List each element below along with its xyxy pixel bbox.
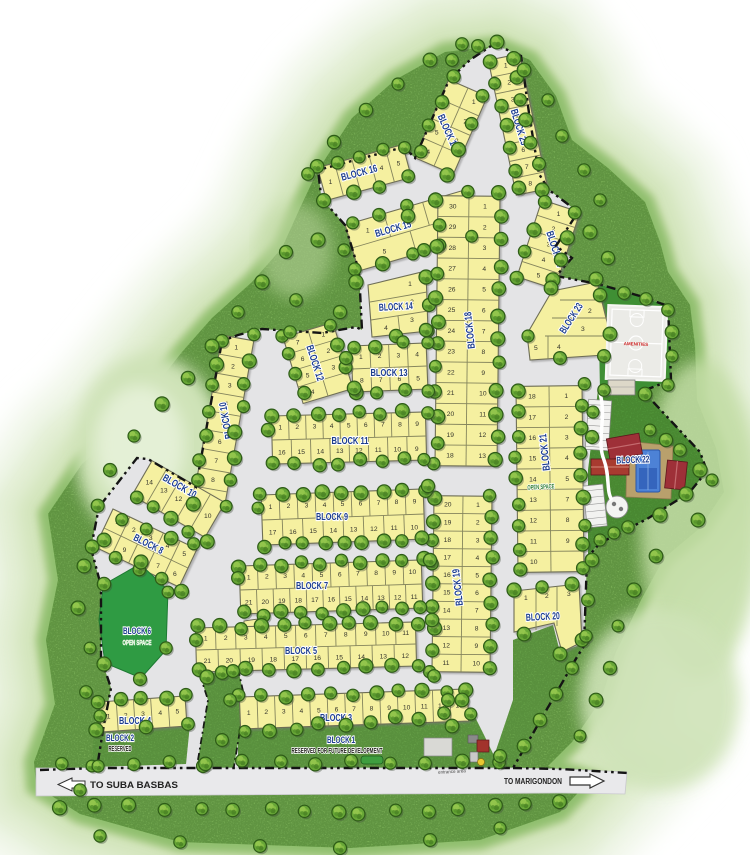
- svg-text:BLOCK 14: BLOCK 14: [379, 301, 414, 314]
- svg-text:14: 14: [146, 479, 154, 486]
- svg-text:1: 1: [204, 635, 208, 642]
- svg-text:9: 9: [415, 421, 419, 428]
- svg-text:OPEN SPACE: OPEN SPACE: [123, 640, 152, 647]
- svg-text:5: 5: [534, 345, 538, 352]
- svg-text:16: 16: [443, 572, 451, 579]
- svg-text:7: 7: [324, 632, 328, 639]
- svg-text:4: 4: [301, 573, 305, 580]
- svg-text:3: 3: [332, 364, 336, 371]
- svg-text:21: 21: [204, 658, 212, 665]
- svg-text:6: 6: [301, 356, 305, 363]
- svg-text:1: 1: [476, 502, 480, 509]
- svg-text:8: 8: [566, 517, 570, 524]
- svg-text:7: 7: [352, 706, 356, 713]
- svg-text:1: 1: [472, 99, 476, 106]
- svg-text:20: 20: [226, 658, 234, 665]
- svg-text:6: 6: [364, 422, 368, 429]
- svg-text:1: 1: [247, 574, 251, 581]
- svg-text:1: 1: [234, 345, 238, 352]
- svg-text:24: 24: [448, 328, 456, 335]
- svg-text:10: 10: [204, 513, 212, 520]
- svg-text:16: 16: [328, 597, 336, 604]
- svg-text:15: 15: [529, 456, 537, 463]
- svg-text:12: 12: [479, 432, 487, 439]
- svg-text:10: 10: [403, 704, 411, 711]
- svg-text:10: 10: [409, 569, 417, 576]
- svg-text:BLOCK 22: BLOCK 22: [616, 454, 650, 466]
- svg-text:15: 15: [309, 528, 317, 535]
- svg-text:4: 4: [542, 257, 546, 264]
- svg-text:16: 16: [278, 449, 286, 456]
- svg-text:12: 12: [370, 526, 378, 533]
- svg-text:7: 7: [377, 500, 381, 507]
- svg-text:BLOCK 1: BLOCK 1: [327, 735, 355, 746]
- svg-text:11: 11: [411, 594, 418, 601]
- svg-text:5: 5: [416, 375, 420, 382]
- svg-text:18: 18: [528, 394, 536, 401]
- svg-text:6: 6: [304, 633, 308, 640]
- svg-text:1: 1: [504, 63, 508, 70]
- svg-text:26: 26: [448, 286, 456, 293]
- svg-text:5: 5: [482, 287, 486, 294]
- svg-text:21: 21: [447, 390, 455, 397]
- svg-text:9: 9: [392, 570, 396, 577]
- svg-text:11: 11: [375, 447, 382, 454]
- svg-text:16: 16: [289, 529, 297, 536]
- svg-text:TO SUBA BASBAS: TO SUBA BASBAS: [90, 780, 178, 791]
- svg-text:11: 11: [421, 704, 428, 711]
- svg-text:11: 11: [443, 660, 450, 667]
- svg-text:3: 3: [410, 317, 414, 324]
- svg-text:8: 8: [211, 477, 215, 484]
- svg-text:1: 1: [557, 211, 561, 218]
- svg-text:4: 4: [300, 708, 304, 715]
- svg-text:2: 2: [565, 414, 569, 421]
- svg-text:6: 6: [338, 571, 342, 578]
- svg-text:23: 23: [447, 349, 455, 356]
- svg-text:11: 11: [479, 411, 486, 418]
- svg-text:6: 6: [173, 571, 177, 578]
- svg-text:20: 20: [261, 599, 269, 606]
- svg-text:13: 13: [443, 625, 451, 632]
- svg-text:BLOCK 9: BLOCK 9: [316, 512, 348, 523]
- svg-text:14: 14: [330, 528, 338, 535]
- svg-text:BLOCK 7: BLOCK 7: [296, 581, 328, 592]
- svg-text:7: 7: [156, 563, 160, 570]
- svg-text:5: 5: [176, 709, 180, 716]
- svg-text:15: 15: [443, 590, 451, 597]
- svg-text:7: 7: [482, 328, 486, 335]
- svg-text:10: 10: [479, 391, 487, 398]
- svg-text:12: 12: [394, 594, 402, 601]
- svg-text:OPEN SPACE: OPEN SPACE: [527, 483, 555, 491]
- svg-text:1: 1: [564, 393, 568, 400]
- svg-text:BLOCK 2: BLOCK 2: [106, 733, 134, 744]
- svg-text:9: 9: [475, 643, 479, 650]
- svg-text:AMENITIES: AMENITIES: [624, 341, 649, 347]
- svg-text:14: 14: [317, 448, 325, 455]
- svg-text:6: 6: [218, 439, 222, 446]
- svg-text:9: 9: [364, 631, 368, 638]
- svg-text:17: 17: [528, 414, 536, 421]
- svg-text:1: 1: [278, 424, 282, 431]
- svg-text:7: 7: [296, 339, 300, 346]
- svg-text:9: 9: [413, 498, 417, 505]
- svg-text:4: 4: [264, 634, 268, 641]
- svg-text:9: 9: [481, 370, 485, 377]
- svg-text:4: 4: [384, 325, 388, 332]
- svg-text:4: 4: [476, 555, 480, 562]
- svg-text:13: 13: [529, 497, 537, 504]
- svg-text:5: 5: [435, 130, 439, 137]
- svg-text:16: 16: [529, 435, 537, 442]
- svg-text:29: 29: [449, 224, 457, 231]
- svg-text:TO MARIGONDON: TO MARIGONDON: [504, 777, 562, 786]
- svg-text:2: 2: [476, 520, 480, 527]
- svg-text:6: 6: [475, 590, 479, 597]
- svg-text:15: 15: [344, 596, 352, 603]
- svg-text:2: 2: [231, 363, 235, 370]
- svg-text:13: 13: [350, 527, 358, 534]
- svg-text:1: 1: [247, 710, 251, 717]
- svg-text:4: 4: [557, 344, 561, 351]
- svg-text:12: 12: [175, 496, 183, 503]
- svg-text:4: 4: [482, 266, 486, 273]
- svg-text:28: 28: [449, 245, 457, 252]
- svg-text:15: 15: [336, 655, 344, 662]
- svg-text:7: 7: [525, 164, 529, 171]
- svg-text:1: 1: [359, 354, 363, 361]
- svg-text:4: 4: [158, 710, 162, 717]
- svg-text:2: 2: [264, 709, 268, 716]
- svg-text:4: 4: [380, 165, 384, 172]
- svg-text:12: 12: [402, 653, 410, 660]
- svg-text:4: 4: [415, 352, 419, 359]
- svg-text:22: 22: [447, 370, 455, 377]
- svg-text:25: 25: [448, 307, 456, 314]
- svg-text:3: 3: [305, 502, 309, 509]
- svg-text:BLOCK 13: BLOCK 13: [371, 368, 408, 379]
- svg-text:17: 17: [311, 597, 319, 604]
- svg-text:17: 17: [443, 555, 451, 562]
- svg-text:9: 9: [387, 705, 391, 712]
- svg-text:2: 2: [287, 503, 291, 510]
- svg-text:7: 7: [356, 571, 360, 578]
- svg-text:5: 5: [347, 423, 351, 430]
- svg-text:RESERVED: RESERVED: [109, 746, 132, 753]
- svg-text:2: 2: [483, 224, 487, 231]
- svg-text:8: 8: [528, 181, 532, 188]
- svg-text:3: 3: [565, 435, 569, 442]
- svg-text:3: 3: [228, 382, 232, 389]
- svg-text:30: 30: [449, 203, 457, 210]
- svg-text:1: 1: [322, 331, 326, 338]
- svg-text:5: 5: [284, 633, 288, 640]
- svg-text:1: 1: [483, 204, 487, 211]
- svg-text:BLOCK 5: BLOCK 5: [285, 646, 317, 657]
- svg-text:19: 19: [446, 432, 454, 439]
- svg-text:13: 13: [160, 488, 168, 495]
- svg-text:9: 9: [415, 446, 419, 453]
- svg-text:7: 7: [475, 608, 479, 615]
- svg-text:10: 10: [394, 446, 402, 453]
- svg-text:7: 7: [566, 497, 570, 504]
- svg-text:5: 5: [341, 501, 345, 508]
- svg-text:BLOCK 6: BLOCK 6: [123, 626, 151, 637]
- svg-text:2: 2: [224, 635, 228, 642]
- svg-text:11: 11: [391, 525, 398, 532]
- svg-text:8: 8: [482, 349, 486, 356]
- svg-text:1: 1: [329, 179, 333, 186]
- svg-text:14: 14: [443, 607, 451, 614]
- svg-text:8: 8: [395, 499, 399, 506]
- svg-text:10: 10: [472, 661, 480, 668]
- svg-text:18: 18: [295, 598, 303, 605]
- svg-text:12: 12: [530, 518, 538, 525]
- svg-text:5: 5: [383, 249, 387, 256]
- svg-text:17: 17: [269, 530, 277, 537]
- svg-text:13: 13: [336, 448, 344, 455]
- svg-text:5: 5: [537, 272, 541, 279]
- svg-text:6: 6: [482, 308, 486, 315]
- svg-text:3: 3: [476, 537, 480, 544]
- svg-text:4: 4: [565, 455, 569, 462]
- svg-text:14: 14: [529, 476, 537, 483]
- svg-text:10: 10: [382, 631, 390, 638]
- svg-text:4: 4: [330, 423, 334, 430]
- svg-text:1: 1: [366, 228, 370, 235]
- svg-text:RESERVED FOR FUTURE DEVELOPMEN: RESERVED FOR FUTURE DEVELOPMENT: [292, 748, 383, 755]
- svg-text:13: 13: [380, 653, 388, 660]
- svg-text:8: 8: [475, 625, 479, 632]
- svg-text:18: 18: [270, 656, 278, 663]
- svg-text:BLOCK 20: BLOCK 20: [526, 611, 561, 624]
- svg-text:3: 3: [313, 424, 317, 431]
- svg-text:5: 5: [306, 372, 310, 379]
- svg-text:5: 5: [565, 476, 569, 483]
- svg-text:5: 5: [397, 160, 401, 167]
- svg-text:20: 20: [447, 411, 455, 418]
- svg-text:8: 8: [360, 378, 364, 385]
- svg-text:27: 27: [448, 266, 456, 273]
- svg-text:1: 1: [408, 281, 412, 288]
- svg-text:13: 13: [478, 453, 486, 460]
- svg-text:3: 3: [397, 352, 401, 359]
- svg-text:11: 11: [530, 538, 537, 545]
- svg-text:6: 6: [521, 147, 525, 154]
- svg-text:4: 4: [323, 502, 327, 509]
- svg-text:11: 11: [402, 630, 409, 637]
- svg-text:18: 18: [444, 537, 452, 544]
- svg-text:5: 5: [182, 551, 186, 558]
- svg-text:2: 2: [588, 308, 592, 315]
- svg-text:3: 3: [567, 591, 571, 598]
- svg-text:8: 8: [398, 421, 402, 428]
- svg-text:8: 8: [344, 632, 348, 639]
- svg-text:19: 19: [444, 519, 452, 526]
- svg-text:5: 5: [320, 572, 324, 579]
- svg-text:10: 10: [530, 559, 538, 566]
- svg-text:3: 3: [483, 245, 487, 252]
- svg-text:3: 3: [581, 326, 585, 333]
- svg-text:8: 8: [374, 570, 378, 577]
- svg-text:15: 15: [297, 449, 305, 456]
- svg-text:2: 2: [295, 424, 299, 431]
- svg-text:1: 1: [269, 504, 273, 511]
- svg-text:2: 2: [265, 574, 269, 581]
- svg-text:7: 7: [214, 458, 218, 465]
- svg-text:9: 9: [566, 538, 570, 545]
- svg-text:10: 10: [411, 525, 419, 532]
- svg-text:8: 8: [370, 706, 374, 713]
- svg-text:BLOCK 11: BLOCK 11: [332, 436, 369, 447]
- svg-text:2: 2: [327, 348, 331, 355]
- svg-text:3: 3: [282, 709, 286, 716]
- svg-text:1: 1: [524, 595, 528, 602]
- svg-text:9: 9: [123, 547, 127, 554]
- svg-text:7: 7: [381, 422, 385, 429]
- svg-text:18: 18: [446, 453, 454, 460]
- svg-text:20: 20: [444, 502, 452, 509]
- svg-text:5: 5: [475, 573, 479, 580]
- svg-text:12: 12: [442, 643, 450, 650]
